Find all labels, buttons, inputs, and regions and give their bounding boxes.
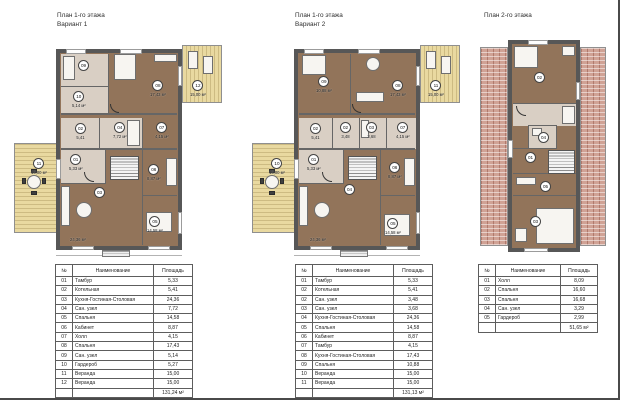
room-number: 10: [73, 91, 84, 102]
wall: [61, 113, 177, 115]
cell-area: 15,00: [394, 369, 433, 378]
plan1-title-line2: Вариант 1: [57, 21, 105, 30]
cell-num: 01: [296, 277, 313, 286]
wall: [380, 149, 381, 196]
room-number: 07: [397, 122, 408, 133]
desk: [404, 158, 415, 186]
col-area: Площадь: [154, 265, 193, 277]
room-label-04: 04: [538, 132, 549, 143]
wardrobe: [154, 54, 177, 62]
room-tambur-01: [61, 149, 105, 184]
cell-num: 04: [479, 304, 496, 313]
cell-num: 10: [296, 369, 313, 378]
total-area: 131,24 м²: [154, 388, 193, 397]
floor-plan-variant2: 01 5,33 м² 02 5,41 02 3,48 03 3,68 04 24…: [252, 44, 460, 258]
room-number: 09: [78, 60, 89, 71]
table-row: 09 Спальня 10,88: [296, 360, 433, 369]
table-row: 02 Котельная 5,41: [296, 286, 433, 295]
room-label-03: 03: [94, 187, 105, 198]
room-label-03: 03: [530, 216, 541, 227]
room-area: 10,88 м²: [316, 88, 332, 93]
cell-num: 09: [296, 360, 313, 369]
lounger: [441, 56, 451, 74]
room-label-05: 05 14,58 м²: [147, 216, 163, 233]
room-number: 01: [70, 154, 81, 165]
area-table-variant1: № Наименование Площадь 01 Тамбур 5,33 02…: [55, 264, 193, 398]
window: [524, 248, 548, 253]
cell-name: Сан. узел: [313, 295, 394, 304]
cell-area: 4,15: [394, 342, 433, 351]
cell-name: Сан. узел: [496, 304, 561, 313]
room-number: 05: [540, 181, 551, 192]
room-label-01: 01: [525, 152, 536, 163]
wall: [528, 126, 529, 148]
window: [56, 159, 61, 179]
window: [148, 246, 170, 251]
bed: [536, 208, 574, 244]
plan2-title-line2: Вариант 2: [295, 21, 343, 30]
room-number: 06: [148, 164, 159, 175]
lounger: [203, 56, 213, 74]
cell-area: 15,00: [154, 379, 193, 388]
cell-area: 16,68: [561, 295, 598, 304]
wall: [142, 118, 143, 149]
room-area: 15,00 м²: [428, 92, 444, 97]
plan1-title: План 1-го этажа Вариант 1: [57, 12, 105, 29]
cell-name: Тамбур: [313, 277, 394, 286]
table-row: 12 Веранда 15,00: [56, 379, 193, 388]
table-row: 01 Тамбур 5,33: [56, 277, 193, 286]
cell-num: 02: [479, 286, 496, 295]
cell-name: Кабинет: [73, 323, 154, 332]
drawing-sheet: План 1-го этажа Вариант 1 План 1-го этаж…: [0, 0, 620, 400]
room-label-02b: 02 3,48: [340, 122, 351, 139]
cell-name: Кухня-Гостиная-Столовая: [313, 314, 394, 323]
cell-empty: [296, 388, 313, 397]
cell-num: 03: [479, 295, 496, 304]
cell-area: 8,09: [561, 277, 598, 286]
cell-num: 01: [56, 277, 73, 286]
wall: [108, 54, 109, 113]
chair: [260, 178, 264, 184]
room-label-01: 01 5,33 м²: [69, 154, 83, 171]
table-row: 02 Сан. узел 3,48: [296, 295, 433, 304]
room-number: 10: [271, 158, 282, 169]
room-area: 5,33 м²: [307, 166, 321, 171]
cell-area: 24,36: [154, 295, 193, 304]
cell-num: 02: [296, 286, 313, 295]
room-number: 11: [33, 158, 44, 169]
cell-name: Спальня: [73, 342, 154, 351]
cell-area: 14,58: [154, 314, 193, 323]
total-area: 131,13 м²: [394, 388, 433, 397]
cell-area: 3,48: [394, 295, 433, 304]
room-number: 04: [114, 122, 125, 133]
plan3-title: План 2-го этажа: [484, 12, 532, 21]
room-number: 03: [94, 187, 105, 198]
room-label-03: 03 3,68: [366, 122, 377, 139]
room-number: 01: [525, 152, 536, 163]
room-number: 02: [310, 123, 321, 134]
table-row: 06 Кабинет 8,87: [296, 332, 433, 341]
plan2-title: План 1-го этажа Вариант 2: [295, 12, 343, 29]
table-row: 10 Веранда 15,00: [296, 369, 433, 378]
table-row: 06 Кабинет 8,87: [56, 323, 193, 332]
room-label-11: 11 15,00 м²: [31, 158, 47, 175]
wall: [142, 149, 143, 196]
cell-area: 4,15: [154, 332, 193, 341]
cell-name: Котельная: [313, 286, 394, 295]
cell-empty: [496, 323, 561, 332]
cell-num: 12: [56, 379, 73, 388]
wardrobe: [562, 46, 575, 56]
window: [72, 246, 94, 251]
wall: [513, 195, 576, 196]
cell-num: 10: [56, 360, 73, 369]
cell-area: 8,87: [154, 323, 193, 332]
cell-empty: [479, 323, 496, 332]
cell-name: Сан. узел: [313, 304, 394, 313]
window: [576, 82, 581, 100]
cell-area: 5,41: [154, 286, 193, 295]
room-label-07: 07 4,15 м²: [396, 122, 410, 139]
window: [294, 159, 299, 179]
cell-name: Холл: [73, 332, 154, 341]
room-area: 17,43 м²: [150, 92, 166, 97]
bathtub: [63, 56, 75, 80]
col-name: Наименование: [496, 265, 561, 277]
room-number: 02: [340, 122, 351, 133]
room-label-05: 05: [540, 181, 551, 192]
wall: [386, 118, 387, 149]
table-row: 03 Кухня-Гостиная-Столовая 24,36: [56, 295, 193, 304]
room-number: 08: [392, 80, 403, 91]
cell-num: 06: [296, 332, 313, 341]
wall: [299, 183, 344, 184]
wall: [105, 149, 106, 184]
cell-name: Веранда: [313, 369, 394, 378]
wall: [299, 113, 415, 115]
window: [528, 40, 548, 45]
cell-name: Спальня: [313, 360, 394, 369]
room-number: 06: [389, 162, 400, 173]
window: [66, 49, 86, 54]
dresser: [515, 228, 527, 242]
room-number: 05: [149, 216, 160, 227]
roof-hatch-left: [480, 47, 508, 246]
chair: [42, 178, 46, 184]
table-row: 05 Гардероб 2,99: [479, 314, 598, 323]
room-area: 4,15 м²: [396, 134, 410, 139]
wall: [142, 195, 177, 196]
wall: [359, 118, 360, 149]
cell-num: 09: [56, 351, 73, 360]
room-label-11: 11 15,00 м²: [428, 80, 444, 97]
col-num: №: [296, 265, 313, 277]
table-row: 03 Сан. узел 3,68: [296, 304, 433, 313]
room-label-06: 06 8,87 м²: [147, 164, 161, 181]
cell-empty: [56, 388, 73, 397]
dining-table: [314, 202, 330, 218]
col-name: Наименование: [73, 265, 154, 277]
table-header-row: № Наименование Площадь: [296, 265, 433, 277]
room-label-08: 08 17,43 м²: [150, 80, 166, 97]
wall: [299, 148, 415, 150]
cell-area: 15,00: [154, 369, 193, 378]
bathtub: [127, 120, 140, 146]
room-label-09: 09 10,88 м²: [316, 76, 332, 93]
cell-name: Спальня: [496, 295, 561, 304]
wall: [350, 54, 351, 113]
room-tambur-01: [299, 149, 343, 184]
desk: [166, 158, 177, 186]
room-area: 3,68: [367, 134, 375, 139]
room-area: 14,58 м²: [147, 228, 163, 233]
entry-steps: [102, 250, 130, 257]
table-row: 05 Спальня 14,58: [296, 323, 433, 332]
room-label-10: 10 15,00 м²: [269, 158, 285, 175]
cell-area: 3,29: [561, 304, 598, 313]
cell-name: Холл: [496, 277, 561, 286]
cell-name: Веранда: [73, 379, 154, 388]
table-total-row: 131,24 м²: [56, 388, 193, 397]
window: [178, 212, 183, 234]
cell-name: Спальня: [73, 314, 154, 323]
bed: [114, 54, 136, 80]
room-number: 05: [387, 218, 398, 229]
room-area-03: 24,36 м²: [70, 237, 86, 242]
cell-num: 01: [479, 277, 496, 286]
room-number: 08: [152, 80, 163, 91]
room-number: 03: [366, 122, 377, 133]
room-area-04: 24,36 м²: [310, 237, 326, 242]
plan2-title-line1: План 1-го этажа: [295, 12, 343, 21]
room-number: 04: [538, 132, 549, 143]
window: [386, 246, 408, 251]
room-area: 7,72 м²: [113, 134, 127, 139]
cell-area: 10,88: [394, 360, 433, 369]
area-table-2nd-floor: № Наименование Площадь 01 Холл 8,09 02 С…: [478, 264, 598, 333]
stairs: [548, 150, 575, 174]
room-label-04: 04 7,72 м²: [113, 122, 127, 139]
cell-num: 02: [56, 286, 73, 295]
room-number: 02: [75, 123, 86, 134]
room-area: 8,87 м²: [388, 174, 402, 179]
cell-name: Кабинет: [313, 332, 394, 341]
wall: [343, 149, 344, 184]
wall: [99, 118, 100, 149]
cell-num: 05: [296, 323, 313, 332]
kitchen-counter: [61, 186, 70, 226]
col-name: Наименование: [313, 265, 394, 277]
kitchen-counter: [299, 186, 308, 226]
table-total-row: 51,65 м²: [479, 323, 598, 332]
cell-num: 07: [56, 332, 73, 341]
veranda-table: [265, 175, 279, 189]
wall: [142, 196, 143, 245]
cell-name: Спальня: [496, 286, 561, 295]
room-area: 5,33 м²: [69, 166, 83, 171]
cell-name: Кухня-Гостиная-Столовая: [73, 295, 154, 304]
bed: [514, 46, 538, 68]
table-header-row: № Наименование Площадь: [479, 265, 598, 277]
table-row: 01 Тамбур 5,33: [296, 277, 433, 286]
wall: [380, 196, 381, 245]
cell-name: Спальня: [313, 323, 394, 332]
room-label-12: 12 15,00 м²: [190, 80, 206, 97]
window: [304, 49, 324, 54]
col-area: Площадь: [561, 265, 598, 277]
wall: [61, 183, 106, 184]
cell-area: 8,87: [394, 332, 433, 341]
room-number: 01: [308, 154, 319, 165]
room-area: 15,00 м²: [31, 170, 47, 175]
cell-area: 5,33: [154, 277, 193, 286]
cell-area: 14,58: [394, 323, 433, 332]
wall: [61, 148, 177, 150]
cell-area: 15,00: [394, 379, 433, 388]
chair: [31, 191, 37, 195]
room-number: 07: [156, 122, 167, 133]
room-area: 15,00 м²: [190, 92, 206, 97]
room-label-04: 04: [344, 184, 355, 195]
room-label-08: 08 17,43 м²: [390, 80, 406, 97]
cell-num: 07: [296, 342, 313, 351]
cell-num: 11: [56, 369, 73, 378]
total-area: 51,65 м²: [561, 323, 598, 332]
room-area: 5,41: [76, 135, 84, 140]
table-row: 04 Сан. узел 3,29: [479, 304, 598, 313]
room-label-02: 02 5,41: [75, 123, 86, 140]
table-row: 02 Котельная 5,41: [56, 286, 193, 295]
cell-area: 5,27: [154, 360, 193, 369]
room-label-10: 10 5,14 м²: [72, 91, 86, 108]
wall: [513, 148, 557, 149]
room-label-06: 06 8,87 м²: [388, 162, 402, 179]
room-area: 5,14 м²: [72, 103, 86, 108]
table-row: 05 Спальня 14,58: [56, 314, 193, 323]
cell-empty: [73, 388, 154, 397]
room-area: 8,87 м²: [147, 176, 161, 181]
chair: [269, 191, 275, 195]
cell-empty: [313, 388, 394, 397]
cell-name: Тамбур: [313, 342, 394, 351]
shelf: [516, 177, 536, 185]
cell-num: 03: [296, 304, 313, 313]
room-number: 12: [192, 80, 203, 91]
cell-num: 04: [56, 304, 73, 313]
wall: [528, 125, 557, 126]
room-area: 17,43 м²: [390, 92, 406, 97]
cell-name: Котельная: [73, 286, 154, 295]
cell-num: 03: [56, 295, 73, 304]
lounger: [188, 51, 198, 69]
cell-name: Тамбур: [73, 277, 154, 286]
cell-area: 5,14: [154, 351, 193, 360]
veranda-table: [27, 175, 41, 189]
cell-area: 16,60: [561, 286, 598, 295]
area-table-variant2: № Наименование Площадь 01 Тамбур 5,33 02…: [295, 264, 433, 398]
room-area: 14,58 м²: [385, 230, 401, 235]
cell-name: Веранда: [73, 369, 154, 378]
table-row: 04 Кухня-Гостиная-Столовая 24,36: [296, 314, 433, 323]
cell-name: Кухня-Гостиная-Столовая: [313, 351, 394, 360]
table-row: 09 Сан. узел 5,14: [56, 351, 193, 360]
table-row: 03 Спальня 16,68: [479, 295, 598, 304]
entry-steps: [340, 250, 368, 257]
col-area: Площадь: [394, 265, 433, 277]
cell-area: 5,41: [394, 286, 433, 295]
table-row: 11 Веранда 15,00: [296, 379, 433, 388]
room-label-07: 07 4,15 м²: [155, 122, 169, 139]
room-area: 3,48: [341, 134, 349, 139]
room-number: 11: [430, 80, 441, 91]
table-row: 01 Холл 8,09: [479, 277, 598, 286]
cell-num: 05: [479, 314, 496, 323]
room-label-02: 02: [534, 72, 545, 83]
wall: [332, 118, 333, 149]
room-area: 5,41: [311, 135, 319, 140]
wall: [61, 86, 108, 87]
stairs: [110, 156, 139, 180]
room-number: 09: [318, 76, 329, 87]
cell-num: 11: [296, 379, 313, 388]
dresser: [562, 106, 575, 124]
table-total-row: 131,13 м²: [296, 388, 433, 397]
window: [310, 246, 332, 251]
table-row: 04 Сан. узел 7,72: [56, 304, 193, 313]
cell-area: 17,43: [154, 342, 193, 351]
wall: [556, 126, 557, 148]
roof-hatch-right: [580, 47, 606, 246]
room-label-02: 02 5,41: [310, 123, 321, 140]
chair: [280, 178, 284, 184]
cell-name: Сан. узел: [73, 351, 154, 360]
table-row: 10 Гардероб 5,27: [56, 360, 193, 369]
floor-plan-variant1: 01 5,33 м² 02 5,41 03 24,36 м² 04 7,72 м…: [14, 44, 222, 256]
cell-num: 08: [56, 342, 73, 351]
room-number: 02: [534, 72, 545, 83]
cell-area: 7,72: [154, 304, 193, 313]
room-number: 03: [530, 216, 541, 227]
table-row: 08 Кухня-Гостиная-Столовая 17,43: [296, 351, 433, 360]
room-area: 4,15 м²: [155, 134, 169, 139]
table-row: 08 Спальня 17,43: [56, 342, 193, 351]
table-row: 02 Спальня 16,60: [479, 286, 598, 295]
cell-area: 2,99: [561, 314, 598, 323]
cell-area: 5,33: [394, 277, 433, 286]
chair: [22, 178, 26, 184]
window: [416, 212, 421, 234]
cell-area: 17,43: [394, 351, 433, 360]
table-header-row: № Наименование Площадь: [56, 265, 193, 277]
cell-num: 08: [296, 351, 313, 360]
table-row: 07 Холл 4,15: [56, 332, 193, 341]
cell-num: 06: [56, 323, 73, 332]
sofa: [356, 92, 384, 102]
window: [120, 49, 142, 54]
dining-table: [76, 202, 92, 218]
room-label-05: 05 14,58 м²: [385, 218, 401, 235]
cell-area: 3,68: [394, 304, 433, 313]
room-label-01: 01 5,33 м²: [307, 154, 321, 171]
room-label-09: 09: [78, 60, 89, 71]
cell-area: 24,36: [394, 314, 433, 323]
table: [366, 57, 380, 71]
wall: [513, 103, 576, 104]
col-num: №: [56, 265, 73, 277]
room-area: 15,00 м²: [269, 170, 285, 175]
